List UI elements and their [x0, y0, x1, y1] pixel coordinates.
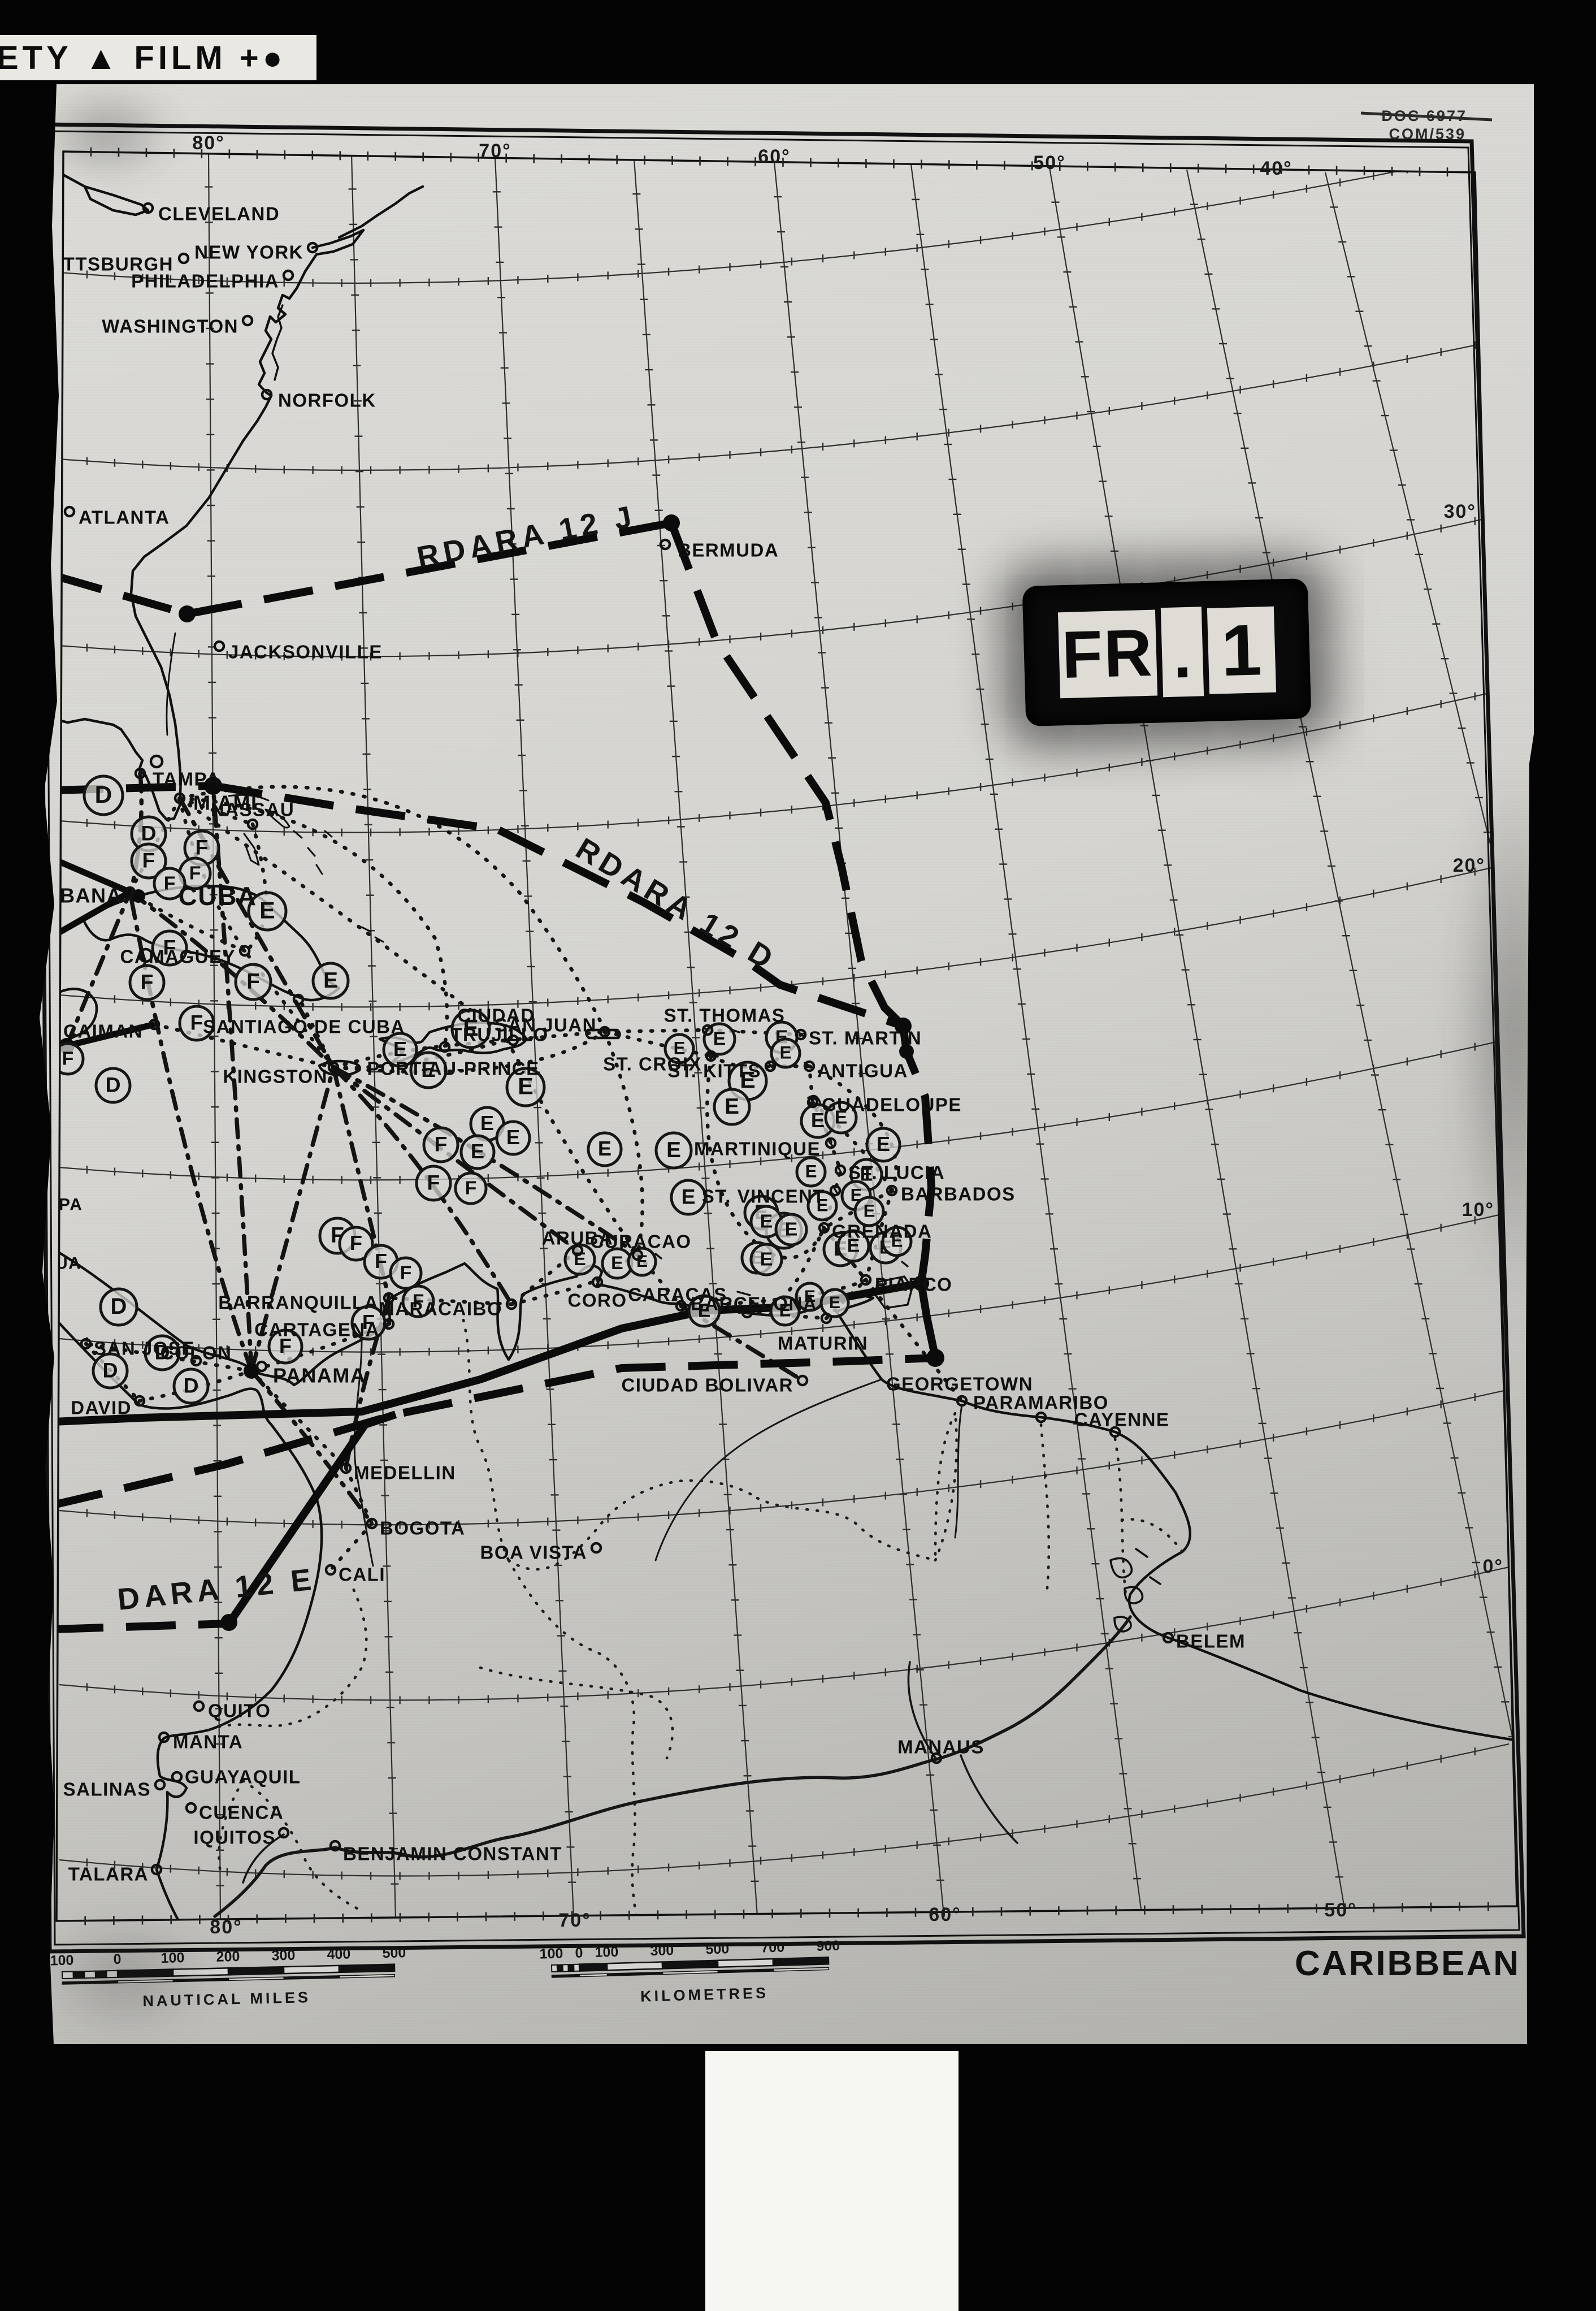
- route-class-letter: E: [611, 1253, 623, 1273]
- route-class-letter: F: [375, 1249, 387, 1273]
- route-class-letter: F: [141, 970, 154, 993]
- film-gap-window: [705, 2051, 959, 2311]
- city-label: JACKSONVILLE: [228, 642, 383, 663]
- route-class-letter: D: [102, 1358, 118, 1382]
- city-label: KINGSTON: [223, 1066, 328, 1087]
- scale-bar-tick-label: 200: [216, 1949, 240, 1965]
- frame-badge: FR . 1: [1022, 578, 1312, 726]
- scale-bar-tick-label: 900: [816, 1938, 840, 1954]
- scale-bar-title: KILOMETRES: [640, 1984, 769, 2005]
- route-class-letter: E: [574, 1249, 586, 1269]
- city-label: GUADELOUPE: [822, 1094, 962, 1115]
- scale-bar-tick-label: 100: [595, 1944, 618, 1961]
- rdara-east-boundary: [671, 523, 903, 1026]
- route-class-letter: E: [480, 1111, 494, 1135]
- city-marker: [661, 540, 670, 549]
- route-class-letter: E: [725, 1094, 739, 1119]
- city: GRAN CAIMAN: [0, 1020, 159, 1042]
- route-class-marker: F: [424, 1128, 458, 1162]
- scale-bar: 1000100300500700900KILOMETRES: [539, 1938, 842, 2008]
- route-class-letter: E: [259, 898, 275, 924]
- scale-bar-tick-label: 300: [650, 1942, 674, 1959]
- city-label: GRENADA: [832, 1221, 932, 1242]
- frame-badge-tile: .: [1160, 607, 1203, 697]
- route-class-letter: F: [400, 1262, 412, 1283]
- city-label: ANTIGUA: [817, 1061, 908, 1081]
- city: CUBA: [179, 881, 257, 911]
- city-label: NEW YORK: [194, 242, 303, 263]
- city: ST. LUCIA: [836, 1162, 945, 1183]
- city-label: DAVID: [71, 1397, 132, 1418]
- scale-bar-tick-label: 100: [161, 1950, 184, 1966]
- route-class-letter: E: [598, 1137, 611, 1160]
- longitude-label-bottom: 80°: [210, 1916, 242, 1938]
- city-label: PHILADELPHIA: [131, 271, 279, 292]
- city-label: WASHINGTON: [102, 316, 238, 337]
- city: PHILADELPHIA: [131, 271, 293, 292]
- parallel-line: [59, 1390, 1509, 1525]
- route-class-letter: D: [95, 782, 112, 808]
- city: TALARA: [68, 1864, 161, 1885]
- route-class-marker: E: [771, 1039, 800, 1067]
- route-class-letter: E: [323, 968, 338, 993]
- city-label: GRAN CAIMAN: [0, 1021, 143, 1042]
- city: JACKSONVILLE: [215, 642, 383, 663]
- city: MANAUS: [897, 1737, 985, 1763]
- city: BARCELONA: [691, 1293, 817, 1317]
- route-class-letter: E: [760, 1210, 773, 1232]
- latitude-label-right: 10°: [1462, 1199, 1494, 1221]
- route-class-letter: E: [785, 1218, 798, 1240]
- route-class-letter: D: [183, 1373, 198, 1397]
- city-label: ST. LUCIA: [848, 1162, 945, 1183]
- city-label: ST. KITTS: [667, 1061, 761, 1081]
- city-label: NORFOLK: [278, 390, 376, 411]
- city: GUAYAQUIL: [172, 1767, 301, 1788]
- route-class-letter: E: [805, 1162, 817, 1182]
- city-marker: [279, 1828, 288, 1837]
- city: ST. KITTS: [667, 1061, 775, 1081]
- city-label: PA: [59, 1196, 83, 1214]
- scale-bar: 1000100200300400500NAUTICAL MILES: [50, 1945, 407, 2011]
- rdara-12e-boundary: [54, 1624, 229, 1629]
- city-label: CUBA: [179, 881, 257, 911]
- route-class-marker: E: [776, 1214, 806, 1245]
- route-class-marker: F: [456, 1173, 486, 1204]
- rio-madeira: [961, 1755, 1017, 1843]
- longitude-label-top: 50°: [1033, 152, 1065, 174]
- lake-okeechobee: [151, 756, 162, 767]
- scale-bar-tick-label: 300: [271, 1948, 295, 1964]
- city: IQUITOS: [193, 1827, 288, 1848]
- city-label: TAMPA: [153, 769, 220, 790]
- route-class-letter: F: [190, 1010, 203, 1034]
- city-label: BOGOTA: [380, 1518, 465, 1539]
- rio-orinoco: [656, 1379, 882, 1560]
- city-marker: [243, 316, 252, 325]
- route-class-letter: F: [465, 1177, 477, 1198]
- city-marker: [326, 1565, 335, 1574]
- city: SAN JUAN: [495, 1015, 609, 1036]
- city: BELEM: [1164, 1631, 1246, 1652]
- region-label: DARA 12 E: [116, 1562, 317, 1616]
- amazon-delta: [1111, 1549, 1160, 1631]
- city: ST. VINCENT: [702, 1186, 840, 1207]
- route-class-letter: D: [141, 821, 156, 845]
- scale-bar-tick-label: 100: [539, 1945, 563, 1962]
- route-class-letter: F: [62, 1048, 74, 1069]
- coast-long-island: [313, 230, 363, 254]
- city-label: SAN JUAN: [495, 1015, 597, 1036]
- route-class-marker: E: [588, 1133, 621, 1166]
- longitude-label-top: 70°: [479, 140, 511, 162]
- amazon-river: [215, 1617, 1130, 1916]
- coast-great-lakes: [54, 170, 148, 215]
- city-label: ST. VINCENT: [702, 1186, 825, 1207]
- route-class-marker: F: [236, 964, 271, 999]
- city: COLON: [161, 1343, 232, 1365]
- longitude-label-top: 60°: [758, 146, 790, 167]
- city-label: ATLANTA: [79, 507, 170, 528]
- city: BENJAMIN CONSTANT: [331, 1841, 562, 1864]
- city: CAYENNE: [1074, 1409, 1170, 1436]
- route-class-letter: E: [780, 1043, 792, 1063]
- city: MANTA: [159, 1732, 243, 1752]
- scale-bar-tick-label: 700: [761, 1939, 784, 1955]
- city: BARBADOS: [887, 1184, 1016, 1205]
- region-label: RDARA 12 D: [570, 832, 783, 978]
- region-label: RDARA 12 J: [414, 499, 639, 575]
- route-class-marker: E: [313, 963, 348, 998]
- route-class-letter: F: [142, 848, 155, 872]
- city: CIUDAD BOLIVAR: [621, 1375, 807, 1396]
- latitude-label-right: 0°: [1482, 1556, 1503, 1577]
- route-class-marker: E: [797, 1158, 825, 1186]
- route-class-marker: E: [714, 1089, 749, 1124]
- longitude-label-bottom: 60°: [929, 1904, 961, 1925]
- city: ANTIGUA: [805, 1061, 908, 1081]
- city-label: COLON: [161, 1343, 232, 1364]
- city: NORFOLK: [262, 390, 376, 411]
- scale-bar-tick-label: 500: [382, 1945, 406, 1961]
- city: GRENADA: [819, 1221, 932, 1242]
- route-class-marker: D: [174, 1369, 208, 1403]
- route-class-letter: E: [471, 1140, 484, 1163]
- city: KINGSTON: [223, 1063, 338, 1087]
- frame-badge-tile: 1: [1207, 607, 1276, 694]
- city: CARTAGENA: [254, 1319, 393, 1340]
- route-class-marker: E: [751, 1244, 782, 1275]
- city-label: CLEVELAND: [158, 204, 280, 224]
- parallel-line: [59, 338, 1509, 470]
- coast-south-america-north: [251, 1263, 1515, 1740]
- city: ATLANTA: [65, 507, 170, 528]
- city: BOA VISTA: [480, 1542, 601, 1563]
- city-label: ST. MARTIN: [809, 1028, 922, 1049]
- city-label: CARTAGENA: [254, 1319, 380, 1340]
- city-label: MEDELLIN: [354, 1462, 456, 1483]
- route-class-marker: D: [96, 1068, 130, 1102]
- city: CLEVELAND: [144, 204, 280, 224]
- city-marker: [172, 1772, 181, 1781]
- route-class-marker: D: [93, 1354, 127, 1388]
- city: WASHINGTON: [102, 316, 252, 337]
- route-class-letter: F: [189, 862, 201, 884]
- scale-bar-tick-label: 0: [575, 1945, 583, 1961]
- route-class-marker: E: [497, 1122, 530, 1154]
- scale-bar-title: NAUTICAL MILES: [142, 1989, 311, 2010]
- city: MARACAIBO: [379, 1299, 516, 1319]
- city-label: CALI: [339, 1564, 385, 1585]
- route-class-letter: E: [829, 1293, 840, 1312]
- city-label: CIUDAD BOLIVAR: [621, 1375, 793, 1396]
- city-label: QUITO: [208, 1700, 271, 1721]
- city-label: MANTA: [173, 1732, 243, 1752]
- city-label: PANAMA: [273, 1364, 366, 1387]
- route-class-letter: E: [760, 1248, 773, 1270]
- route-class-letter: F: [427, 1170, 440, 1194]
- route-class-letter: E: [713, 1028, 726, 1049]
- city-label: CAMAGUEY: [120, 946, 236, 967]
- chart-title: CARIBBEAN: [1295, 1944, 1520, 1983]
- scale-bar-tick-label: 500: [705, 1941, 729, 1957]
- city-label: CUENCA: [199, 1802, 284, 1823]
- city-label: PORT-AU-PRINCE: [367, 1058, 539, 1079]
- city-marker: [798, 1376, 807, 1385]
- route-class-letter: E: [864, 1201, 875, 1221]
- route-class-marker: E: [461, 1136, 494, 1169]
- city-label: GUAYAQUIL: [185, 1767, 301, 1788]
- microfilm-frame: DDDDDDDFFFFFFFFFFFFFFFFFFFEEEEEEEEEEEEEE…: [0, 0, 1596, 2311]
- route-class-marker: F: [53, 1044, 83, 1074]
- city-label: MARTINIQUE: [694, 1139, 821, 1159]
- city: BOGOTA: [367, 1518, 465, 1539]
- city-label: MARACAIBO: [379, 1299, 502, 1319]
- city: SALINAS: [63, 1779, 164, 1800]
- route-class-letter: E: [393, 1037, 407, 1061]
- city-label: GEORGETOWN: [886, 1374, 1033, 1395]
- route-class-letter: E: [681, 1184, 695, 1208]
- coast-new-england: [339, 187, 423, 237]
- city: MARTINIQUE: [694, 1139, 835, 1159]
- city-label: BARRANQUILLA: [218, 1292, 379, 1313]
- city: PA: [59, 1196, 83, 1214]
- city-label: BERMUDA: [678, 540, 779, 561]
- route-class-marker: E: [704, 1024, 735, 1054]
- city-marker: [179, 254, 188, 263]
- scale-bar-tick-label: 100: [50, 1953, 73, 1969]
- latitude-label-right: 20°: [1453, 855, 1485, 876]
- city: CUENCA: [187, 1802, 284, 1823]
- film-header-text: ETY ▲ FILM +●: [0, 39, 287, 77]
- city: NEW YORK: [194, 242, 317, 263]
- route-class-letter: F: [435, 1132, 448, 1155]
- city-layer: CLEVELANDPITTSBURGHNEW YORKPHILADELPHIAW…: [0, 204, 1246, 1885]
- route-class-marker: D: [101, 1289, 137, 1325]
- city-marker: [215, 642, 224, 651]
- city-label: TALARA: [68, 1864, 149, 1885]
- city-label: NASSAU: [211, 799, 294, 820]
- city: PANAMA: [257, 1362, 366, 1387]
- longitude-label-bottom: 50°: [1324, 1899, 1356, 1921]
- city-label: MATURIN: [778, 1333, 868, 1354]
- city-marker: [155, 1780, 164, 1789]
- route-class-marker: E: [656, 1133, 691, 1168]
- city-label: BARBADOS: [901, 1184, 1016, 1205]
- route-class-marker: D: [84, 776, 123, 815]
- city-label: IQUITOS: [193, 1827, 276, 1848]
- com-number: COM/539: [1389, 125, 1466, 142]
- frame-badge-tile: FR: [1057, 610, 1157, 699]
- longitude-label-bottom: 70°: [558, 1910, 591, 1931]
- city-label: CORO: [568, 1290, 627, 1311]
- city: GUADELOUPE: [808, 1094, 962, 1115]
- city-label: BARCELONA: [691, 1293, 817, 1314]
- route-class-letter: F: [196, 835, 209, 859]
- city-label: MANAUS: [897, 1737, 985, 1758]
- longitude-label-top: 40°: [1260, 158, 1292, 179]
- city: QUITO: [194, 1700, 271, 1721]
- city: CALI: [326, 1564, 385, 1585]
- city-marker: [65, 507, 74, 516]
- route-class-letter: F: [246, 970, 260, 994]
- route-class-letter: F: [164, 872, 176, 894]
- caribbean-chart-svg: DDDDDDDFFFFFFFFFFFFFFFFFFFEEEEEEEEEEEEEE…: [0, 0, 1596, 2311]
- city-label: CAYENNE: [1074, 1409, 1170, 1430]
- route-class-letter: F: [350, 1231, 362, 1254]
- city-label: BENJAMIN CONSTANT: [343, 1843, 562, 1864]
- scale-bar-tick-label: 400: [327, 1946, 350, 1962]
- route-class-letter: E: [506, 1126, 520, 1149]
- route-class-marker: F: [130, 966, 164, 999]
- city: PIARCO: [861, 1274, 952, 1295]
- city-marker: [194, 1702, 203, 1711]
- city-marker: [592, 1543, 601, 1552]
- city: BARRANQUILLA: [218, 1292, 393, 1313]
- route-class-marker: E: [821, 1289, 848, 1317]
- city-marker: [187, 1803, 196, 1812]
- city-label: ST. THOMAS: [664, 1005, 786, 1026]
- city-label: SANTIAGO DE CUBA: [203, 1016, 405, 1037]
- city-label: BELEM: [1176, 1631, 1246, 1652]
- route-class-marker: E: [867, 1128, 900, 1161]
- city-marker: [284, 271, 293, 280]
- city: CAMAGUEY: [120, 946, 249, 967]
- city: MEDELLIN: [341, 1462, 456, 1483]
- city: BERMUDA: [661, 540, 779, 561]
- city-label: SALINAS: [63, 1779, 151, 1800]
- latitude-label-right: 30°: [1444, 501, 1476, 522]
- city-marker: [257, 1362, 266, 1371]
- route-class-letter: D: [111, 1294, 127, 1319]
- scale-bar-tick-label: 0: [113, 1951, 122, 1967]
- route-class-marker: E: [671, 1180, 705, 1214]
- city-label: BOA VISTA: [480, 1542, 587, 1563]
- city-label: PIARCO: [875, 1274, 952, 1295]
- route-class-marker: F: [391, 1258, 421, 1288]
- route-class-letter: E: [877, 1132, 890, 1155]
- city-label: CURACAO: [590, 1231, 691, 1252]
- route-class-marker: F: [417, 1166, 450, 1200]
- route-class-letter: D: [105, 1072, 120, 1096]
- film-header-strip: ETY ▲ FILM +●: [0, 35, 316, 80]
- longitude-label-top: 80°: [192, 132, 224, 154]
- route-class-letter: E: [666, 1138, 681, 1162]
- city: ST. MARTIN: [796, 1028, 922, 1049]
